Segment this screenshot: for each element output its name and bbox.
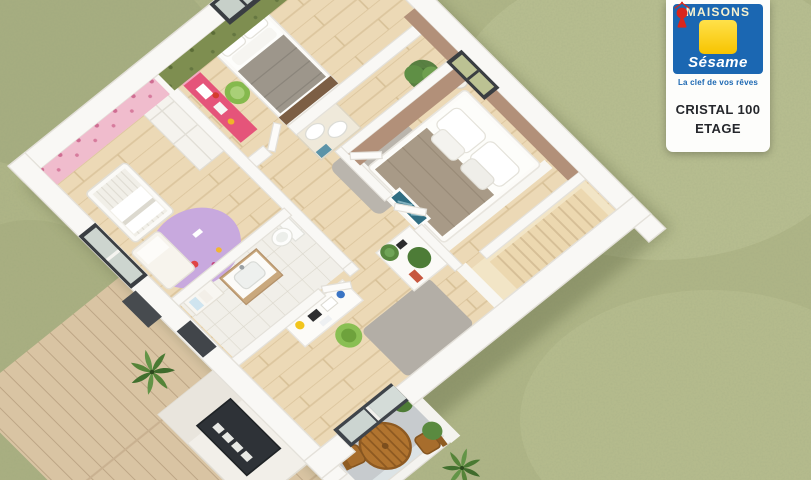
logo-brand-script: Sésame (673, 54, 763, 71)
model-name: CRISTAL 100 ETAGE (666, 100, 770, 138)
model-line-1: CRISTAL 100 (666, 100, 770, 119)
model-line-2: ETAGE (666, 119, 770, 138)
brand-card: MAISONS Sésame La clef de vos rêves CRIS… (666, 0, 770, 152)
logo-tagline: La clef de vos rêves (666, 78, 770, 87)
keyhole-icon (699, 20, 737, 54)
floor-plan-scene: MAISONS Sésame La clef de vos rêves CRIS… (0, 0, 811, 480)
maisons-sesame-logo: MAISONS Sésame (673, 4, 763, 74)
